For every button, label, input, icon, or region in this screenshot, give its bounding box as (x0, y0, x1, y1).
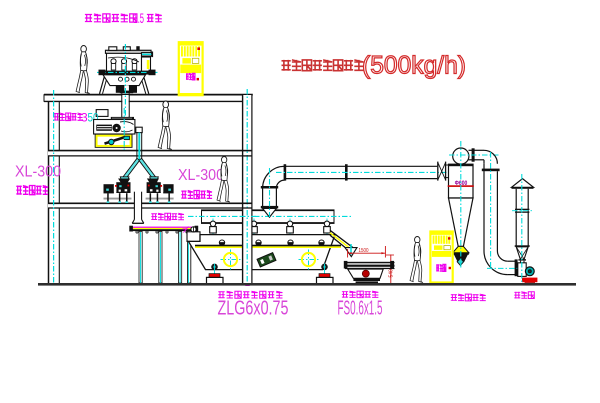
svg-text:XL-300: XL-300 (178, 167, 224, 184)
svg-text:1500: 1500 (359, 248, 369, 254)
svg-text:540: 540 (389, 269, 395, 278)
svg-text:FS0.6x1.5: FS0.6x1.5 (338, 298, 383, 320)
svg-text:(500kg/h): (500kg/h) (362, 52, 466, 80)
svg-text:ZLG6x0.75: ZLG6x0.75 (218, 298, 289, 320)
svg-text:1.5: 1.5 (134, 11, 145, 26)
svg-text:XL-300: XL-300 (15, 164, 61, 181)
